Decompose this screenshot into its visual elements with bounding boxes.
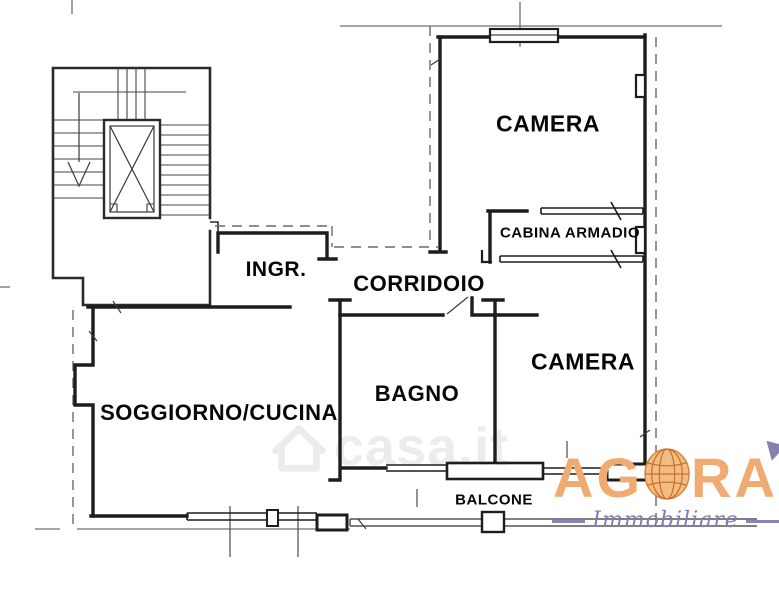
floor-plan-page: casa.it CAMERA CABINA ARMADIO INGR. CORR… xyxy=(0,0,779,600)
agora-immobiliare-logo: AG RA Immobiliare xyxy=(552,450,779,532)
tagline-rule-left xyxy=(552,520,585,523)
logo-tagline: Immobiliare xyxy=(552,510,779,532)
room-label-bagno: BAGNO xyxy=(375,381,459,407)
globe-icon xyxy=(644,448,690,500)
room-label-balcone: BALCONE xyxy=(455,492,533,509)
room-label-ingresso: INGR. xyxy=(246,258,307,282)
room-label-soggiorno-cucina: SOGGIORNO/CUCINA xyxy=(100,400,338,426)
logo-letters-end: RA xyxy=(691,450,778,506)
stairwell xyxy=(53,68,218,305)
room-label-camera-right: CAMERA xyxy=(531,349,635,376)
tagline-rule-right xyxy=(746,520,779,523)
logo-wordmark: AG RA xyxy=(552,450,779,506)
tagline-text: Immobiliare xyxy=(592,510,739,532)
room-label-camera-top: CAMERA xyxy=(496,111,600,138)
logo-letters-start: AG xyxy=(553,450,643,506)
elevator xyxy=(104,120,160,218)
room-label-corridoio: CORRIDOIO xyxy=(353,271,485,297)
room-label-cabina-armadio: CABINA ARMADIO xyxy=(500,225,640,242)
